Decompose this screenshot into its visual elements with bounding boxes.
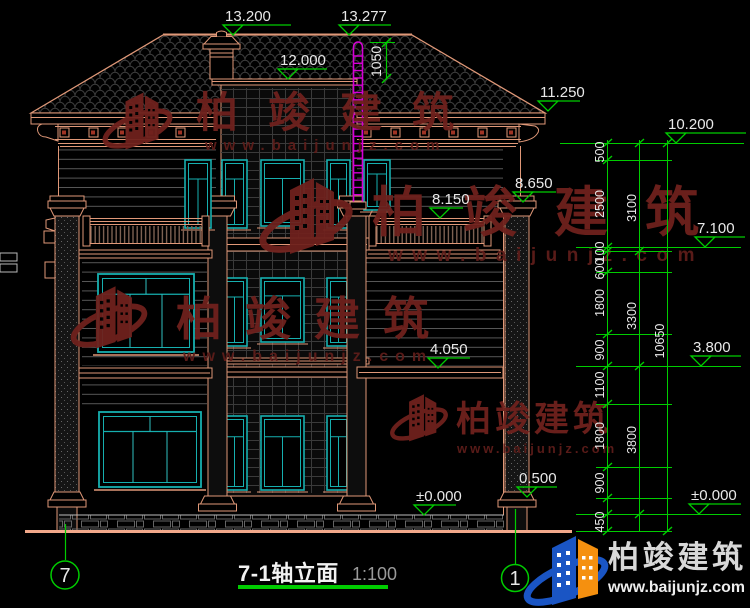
- svg-text:2500: 2500: [593, 190, 607, 218]
- svg-text:8.150: 8.150: [432, 191, 470, 208]
- svg-text:600: 600: [593, 259, 607, 280]
- svg-text:1050: 1050: [368, 46, 384, 77]
- svg-text:1800: 1800: [593, 422, 607, 450]
- svg-text:10650: 10650: [653, 324, 667, 359]
- svg-text:3800: 3800: [625, 426, 639, 454]
- svg-text:3100: 3100: [625, 194, 639, 222]
- svg-text:7: 7: [59, 565, 70, 587]
- svg-text:www.baijunjz.com: www.baijunjz.com: [387, 245, 704, 266]
- svg-text:3.800: 3.800: [693, 339, 731, 356]
- svg-text:11.250: 11.250: [540, 84, 585, 101]
- svg-text:12.000: 12.000: [280, 52, 326, 69]
- svg-text:8.650: 8.650: [515, 175, 553, 192]
- svg-text:13.200: 13.200: [225, 8, 271, 25]
- svg-text:±0.000: ±0.000: [416, 488, 462, 505]
- svg-text:3300: 3300: [625, 302, 639, 330]
- svg-text:柏竣建筑: 柏竣建筑: [196, 89, 484, 136]
- svg-text:1800: 1800: [593, 289, 607, 317]
- svg-text:450: 450: [593, 512, 607, 533]
- svg-text:www.baijunjz.com: www.baijunjz.com: [204, 137, 446, 154]
- svg-text:7-1轴立面: 7-1轴立面: [238, 561, 339, 586]
- svg-text:柏竣建筑: 柏竣建筑: [608, 540, 746, 575]
- svg-text:www.baijunjz.com: www.baijunjz.com: [182, 348, 433, 365]
- svg-text:www.baijunjz.com: www.baijunjz.com: [607, 579, 745, 596]
- svg-text:900: 900: [593, 473, 607, 494]
- svg-text:13.277: 13.277: [341, 8, 387, 25]
- svg-text:900: 900: [593, 340, 607, 361]
- svg-text:柏竣建筑: 柏竣建筑: [456, 399, 612, 439]
- svg-text:0.500: 0.500: [519, 470, 557, 487]
- svg-text:4.050: 4.050: [430, 341, 468, 358]
- svg-text:柏竣建筑: 柏竣建筑: [176, 293, 452, 345]
- svg-text:10.200: 10.200: [668, 116, 714, 133]
- svg-text:1100: 1100: [593, 372, 607, 399]
- svg-text:500: 500: [593, 142, 607, 163]
- svg-text:1: 1: [509, 568, 520, 590]
- svg-text:1:100: 1:100: [352, 564, 397, 584]
- svg-text:±0.000: ±0.000: [691, 487, 737, 504]
- svg-text:7.100: 7.100: [697, 220, 735, 237]
